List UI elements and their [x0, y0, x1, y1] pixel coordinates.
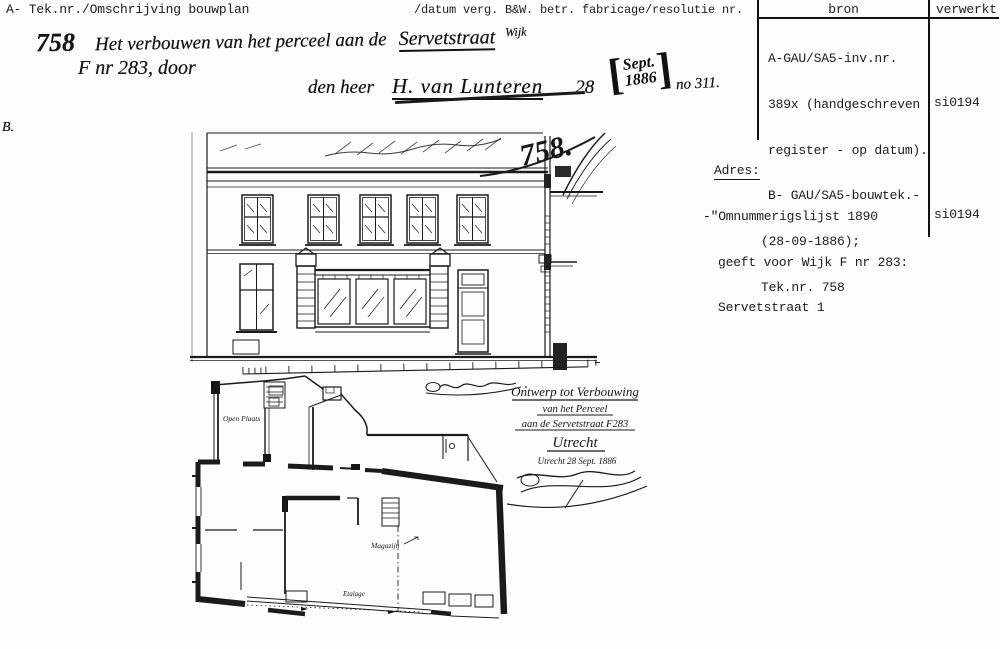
verwerkt-code-bottom: si0194 — [934, 207, 980, 222]
title-line2: van het Perceel — [543, 404, 608, 415]
bron-line: register - op datum). — [768, 143, 928, 159]
title-line1: Ontwerp tot Verbouwing — [511, 384, 639, 399]
entry-line1: 758 Het verbouwen van het perceel aan de… — [36, 20, 527, 59]
bron-line: 389x (handgeschreven — [768, 97, 928, 113]
margin-note-b: B. — [2, 120, 14, 136]
title-line3: aan de Servetstraat F283 — [522, 419, 628, 430]
verwerkt-column-header: verwerkt — [936, 2, 997, 17]
bron-table-column-divider — [928, 0, 930, 237]
adres-label: Adres: — [714, 163, 760, 180]
verwerkt-code-top: si0194 — [934, 95, 980, 110]
label-magazijn: Magazijn — [370, 541, 400, 550]
header-right-label: /datum verg. B&W. betr. fabricage/resolu… — [414, 3, 743, 17]
archive-card: A- Tek.nr./Omschrijving bouwplan /datum … — [0, 0, 1000, 649]
entry-street: Servetstraat — [398, 26, 495, 52]
bron-column-header: bron — [759, 2, 928, 17]
bron-table-header-rule — [757, 17, 999, 19]
adres-line: Servetstraat 1 — [703, 300, 908, 316]
stamp-right-bracket: ] — [655, 50, 674, 88]
label-open-plaats: Open Plaats — [223, 414, 260, 423]
wall-section — [539, 133, 616, 370]
entry-date-day: 28 — [575, 77, 594, 98]
bron-table-left-border — [757, 0, 759, 140]
adres-line: geeft voor Wijk F nr 283: — [703, 255, 908, 271]
applicant-prefix: den heer — [308, 77, 374, 98]
label-etalage: Etalage — [342, 590, 365, 598]
magazijn-arrow — [404, 537, 418, 544]
title-line4: Utrecht — [552, 435, 598, 451]
drawing-title-block: Ontwerp tot Verbouwing van het Perceel a… — [507, 384, 647, 508]
architectural-drawing: 758. — [185, 124, 665, 649]
adres-line: -"Omnummerigslijst 1890 — [703, 209, 908, 225]
header-left-label: A- Tek.nr./Omschrijving bouwplan — [6, 2, 249, 17]
floor-plan — [192, 376, 504, 618]
adres-text: -"Omnummerigslijst 1890 geeft voor Wijk … — [703, 179, 908, 346]
bron-line: A-GAU/SA5-inv.nr. — [768, 51, 928, 67]
resolution-number: no 311. — [676, 75, 721, 94]
title-date: Utrecht 28 Sept. 1886 — [538, 456, 617, 466]
architect-signature-title — [507, 471, 647, 508]
stamp-text: Sept. 1886 — [621, 54, 659, 90]
entry-number: 758 — [36, 28, 76, 58]
entry-wijk: Wijk — [505, 25, 527, 40]
scale-bar — [243, 360, 600, 374]
entry-description: Het verbouwen van het perceel aan de — [95, 29, 387, 55]
stamp-year: 1886 — [624, 70, 658, 90]
date-stamp: [ Sept. 1886 ] — [606, 50, 674, 94]
entry-line2-parcel: F nr 283, door — [78, 57, 196, 80]
